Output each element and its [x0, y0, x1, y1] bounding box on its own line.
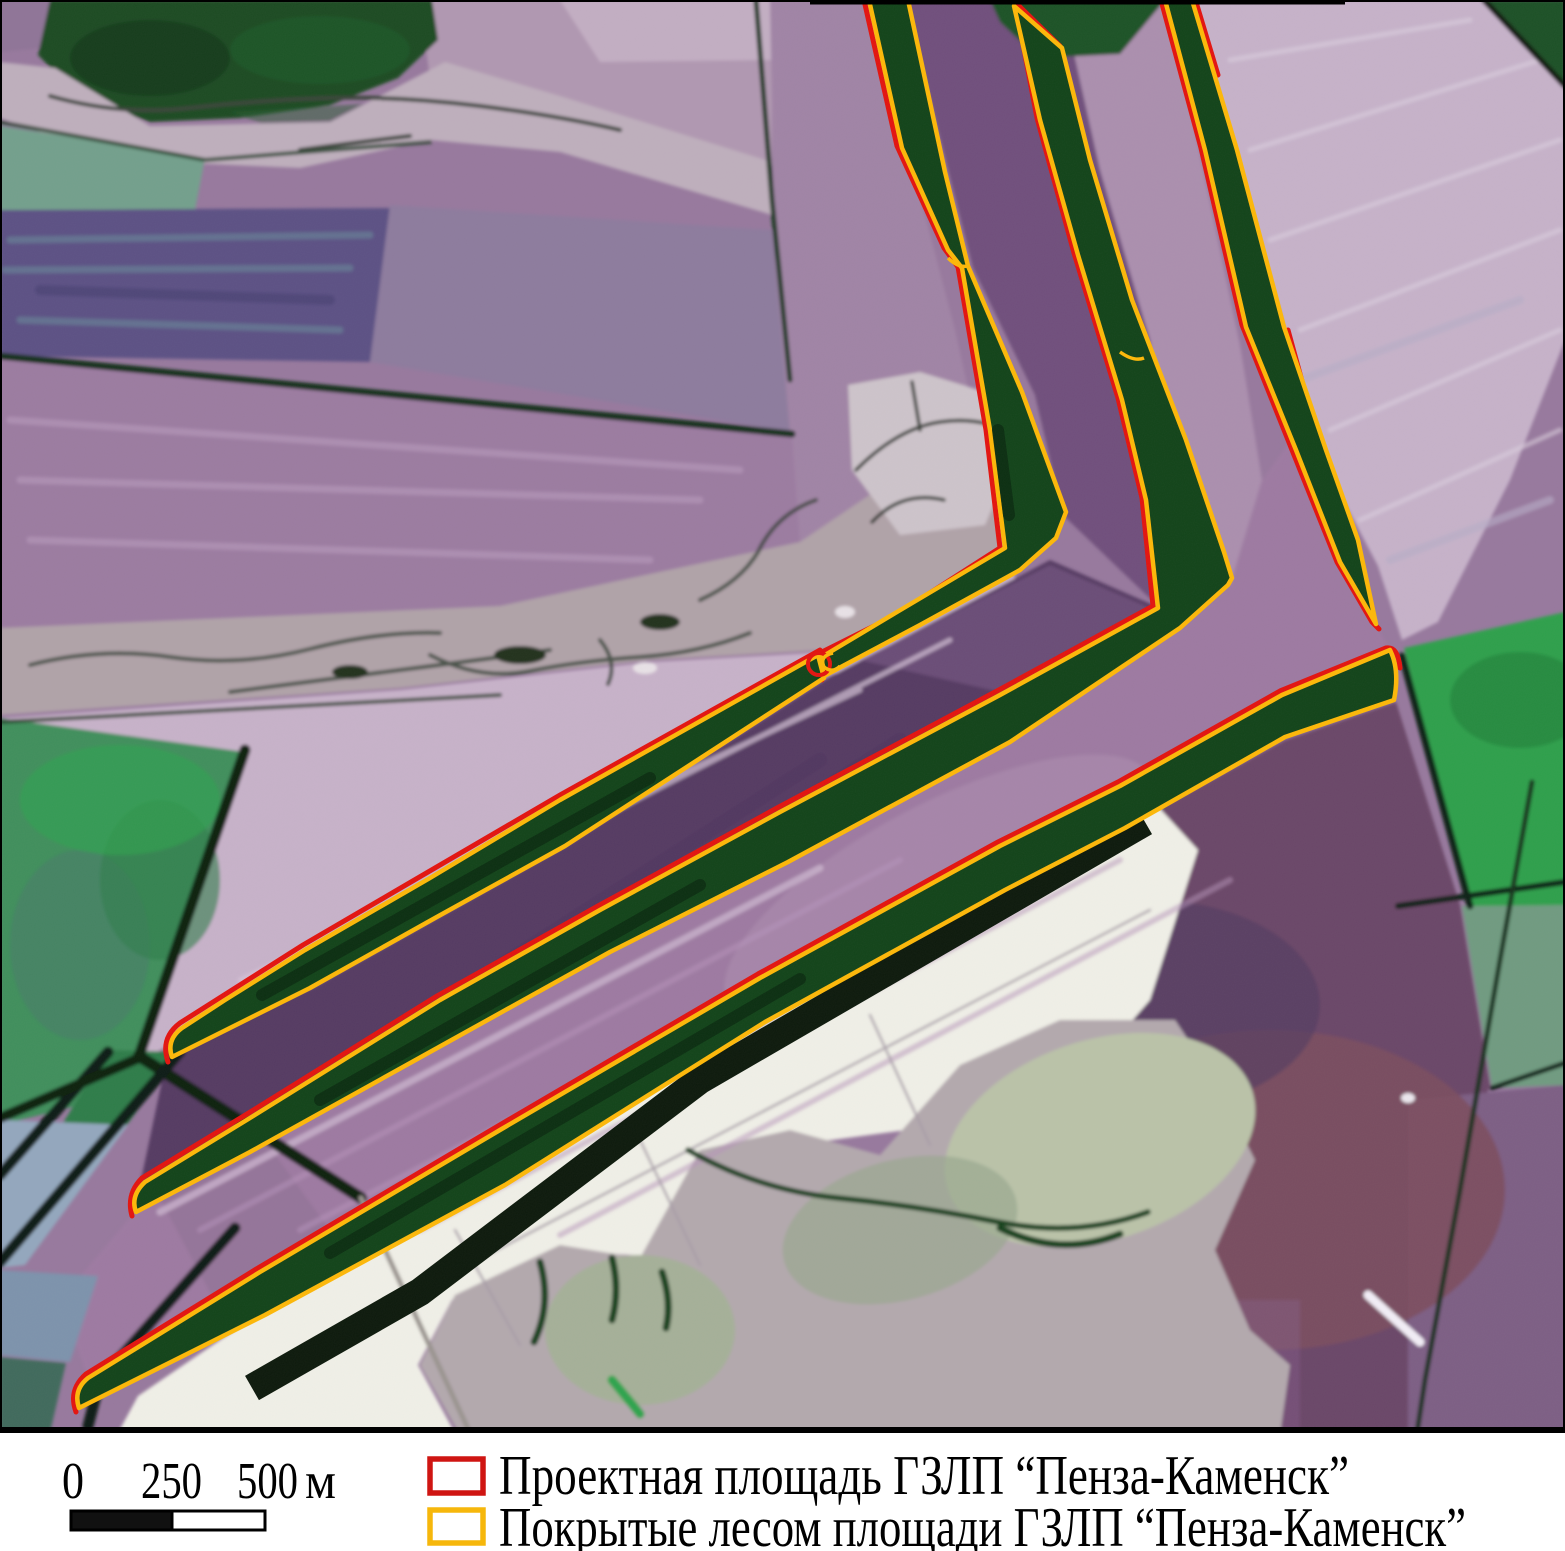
svg-text:Покрытые лесом площади ГЗЛП “П: Покрытые лесом площади ГЗЛП “Пенза-Камен… [499, 1497, 1466, 1551]
svg-text:500: 500 [237, 1453, 298, 1510]
svg-text:250: 250 [141, 1453, 202, 1510]
svg-text:0: 0 [62, 1453, 84, 1510]
svg-text:м: м [305, 1453, 336, 1510]
